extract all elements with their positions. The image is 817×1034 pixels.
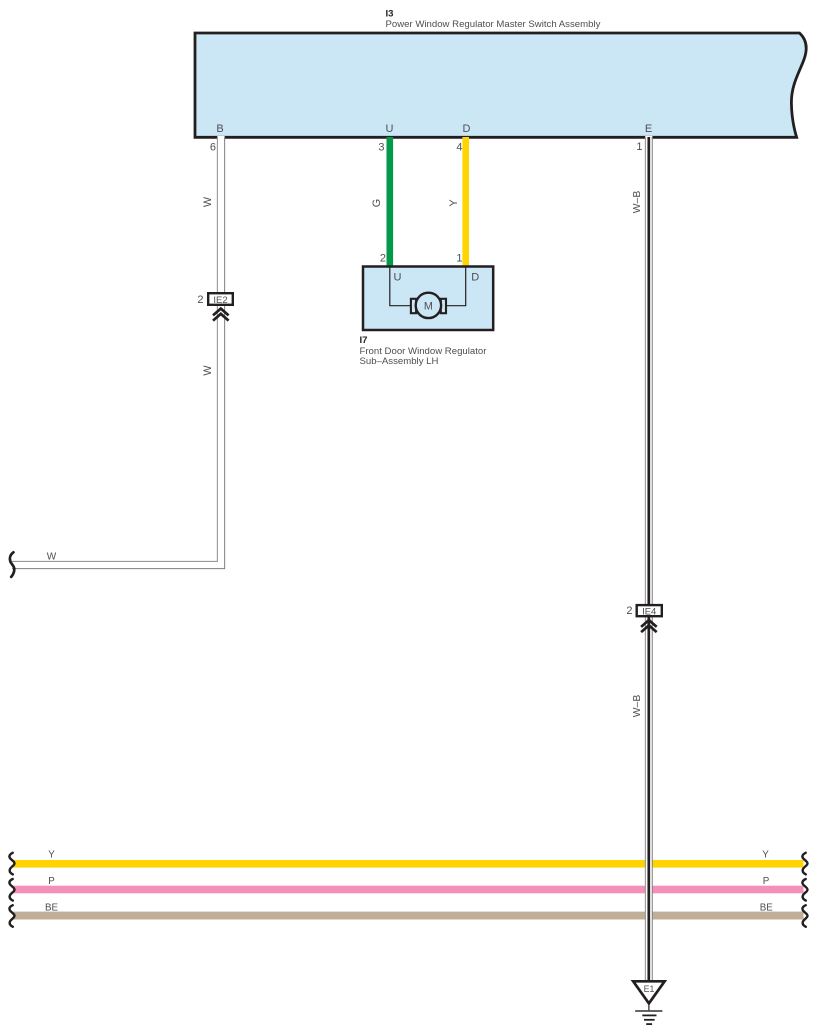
svg-text:E1: E1 xyxy=(644,984,655,994)
svg-text:1: 1 xyxy=(456,253,462,265)
svg-text:D: D xyxy=(463,123,471,135)
svg-text:1: 1 xyxy=(636,141,642,153)
svg-text:I3: I3 xyxy=(386,9,394,20)
svg-text:P: P xyxy=(763,876,770,887)
svg-text:U: U xyxy=(386,123,394,135)
svg-text:D: D xyxy=(471,271,479,283)
svg-text:3: 3 xyxy=(378,142,384,154)
svg-text:6: 6 xyxy=(210,142,216,154)
svg-text:W: W xyxy=(47,552,57,563)
svg-text:P: P xyxy=(48,876,55,887)
svg-text:IE4: IE4 xyxy=(642,606,656,617)
svg-text:BE: BE xyxy=(760,902,774,913)
svg-text:W: W xyxy=(202,365,214,376)
svg-text:2: 2 xyxy=(626,605,632,617)
svg-text:Y: Y xyxy=(448,199,460,206)
svg-text:2: 2 xyxy=(197,294,203,306)
svg-text:Y: Y xyxy=(762,849,769,860)
svg-text:Sub–Assembly LH: Sub–Assembly LH xyxy=(360,356,439,367)
svg-text:U: U xyxy=(394,271,402,283)
svg-text:M: M xyxy=(424,300,433,312)
svg-text:Front Door Window Regulator: Front Door Window Regulator xyxy=(360,346,488,357)
svg-text:4: 4 xyxy=(456,142,462,154)
svg-text:Y: Y xyxy=(48,849,55,860)
svg-text:W–B: W–B xyxy=(632,695,643,718)
svg-text:I7: I7 xyxy=(360,335,368,346)
svg-text:2: 2 xyxy=(380,253,386,265)
svg-text:E: E xyxy=(645,123,652,135)
svg-text:BE: BE xyxy=(45,902,59,913)
svg-text:G: G xyxy=(371,199,383,207)
svg-text:IE2: IE2 xyxy=(213,295,227,306)
svg-text:B: B xyxy=(216,123,223,135)
svg-text:Power Window Regulator Master: Power Window Regulator Master Switch Ass… xyxy=(386,19,601,30)
svg-text:W–B: W–B xyxy=(632,191,643,214)
svg-text:W: W xyxy=(202,196,214,207)
